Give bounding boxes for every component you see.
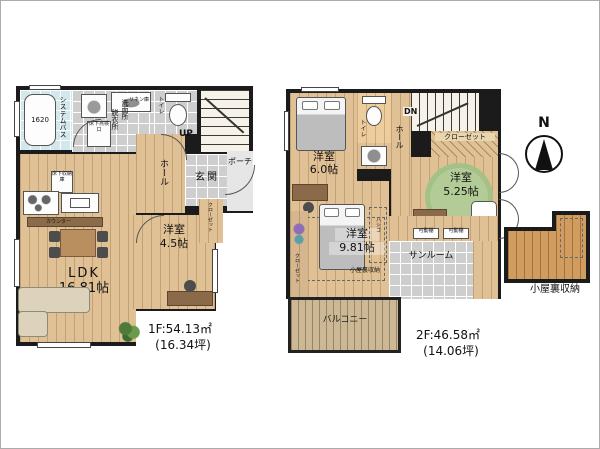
compass-needle-icon — [535, 139, 553, 170]
room6-name-label: 洋室 — [304, 151, 344, 164]
ladder-label: ハシゴ — [375, 217, 380, 232]
ldk-name-label: LDK — [59, 267, 109, 282]
window — [37, 342, 91, 348]
attic-hatch-dashed — [560, 218, 583, 258]
dining-chair — [97, 247, 108, 258]
sofa-chaise — [18, 311, 48, 337]
bathtub-size-label: 1620 — [26, 116, 54, 124]
desk-chair-1f — [184, 280, 196, 292]
floor1-area-label: 1F:54.13㎡ — [137, 323, 223, 337]
floorplan-canvas: 1620 システムバス 床下点検口 脱衣所 洗面所 リネン庫 トイレ UP ホー… — [0, 0, 600, 449]
shelf-b-label: 可動棚 — [443, 228, 469, 239]
room525-size-label: 5.25帖 — [432, 186, 490, 199]
sunroom-side-floor — [473, 241, 498, 299]
floor2-tsubo-label: (14.06坪) — [411, 345, 491, 359]
kitchen-sink — [70, 198, 90, 208]
room6-size-label: 6.0帖 — [301, 164, 347, 177]
floor2-area-label: 2F:46.58㎡ — [405, 329, 491, 343]
window — [212, 249, 218, 293]
desk-1f — [167, 291, 213, 306]
washing-machine — [81, 94, 107, 118]
balcony-label: バルコニー — [315, 315, 375, 325]
toilet2-label: トイレ — [359, 119, 365, 137]
window-swing-arc — [499, 153, 519, 193]
sofa — [18, 287, 90, 313]
counter-label: カウンター — [46, 220, 71, 226]
bath-system-label: システムバス — [59, 96, 66, 148]
room525-name-label: 洋室 — [439, 172, 483, 185]
dining-table — [60, 229, 96, 257]
floor-storage-label: 床下収納庫 — [51, 171, 73, 193]
pillow — [302, 101, 318, 110]
stairs-up-label: UP — [179, 129, 193, 139]
stairs-dn-label: DN — [403, 107, 418, 116]
toilet1-tank — [165, 93, 191, 102]
hall1-label: ホール — [158, 159, 167, 186]
entrance-label: 玄関 — [190, 172, 224, 184]
ladder-dashed-box — [369, 207, 387, 263]
window — [29, 85, 61, 90]
hanging-clothes-icon — [292, 217, 306, 247]
sunroom-label: サンルーム — [397, 251, 465, 261]
dining-chair — [97, 231, 108, 242]
bathtub: 1620 — [24, 94, 56, 146]
kitchen-sink-counter — [61, 193, 99, 213]
dining-chair — [49, 247, 60, 258]
kitchen-counter: カウンター — [27, 217, 103, 227]
toilet2-tank — [362, 96, 386, 104]
stove — [23, 191, 59, 215]
desk-2f-981 — [292, 184, 328, 201]
pillow — [324, 208, 339, 217]
window — [14, 239, 20, 287]
floor1-tsubo-label: (16.34坪) — [143, 339, 223, 353]
linen-label: リネン庫 — [129, 98, 149, 104]
wash-basin-2f — [361, 146, 387, 166]
pillow — [345, 208, 360, 217]
shelf-a-label: 可動棚 — [413, 228, 439, 239]
hall2-label: ホール — [395, 125, 403, 149]
compass-n-label: N — [534, 115, 554, 131]
attic-access-note-label: 小屋裏収納 — [343, 268, 387, 275]
toilet1-bowl — [169, 104, 187, 126]
toilet2-bowl — [366, 106, 382, 126]
closet-2f-left-label: クローゼット — [294, 253, 299, 283]
dressing-room-label: 脱衣所 — [111, 109, 118, 130]
dining-chair — [49, 231, 60, 242]
attic-floor-left — [508, 231, 556, 279]
bed-room6 — [296, 97, 346, 151]
closet-2f-top-label: クローゼット — [435, 133, 495, 141]
window — [14, 101, 20, 137]
pillow — [324, 101, 340, 110]
closet-1f-label: クローゼット — [207, 202, 212, 232]
window — [301, 87, 339, 92]
attic-label: 小屋裏収納 — [517, 284, 593, 296]
washroom-label: 洗面所 — [121, 99, 128, 120]
sunroom-floor — [389, 241, 473, 299]
window — [284, 111, 289, 151]
toilet1-label: トイレ — [157, 96, 163, 114]
